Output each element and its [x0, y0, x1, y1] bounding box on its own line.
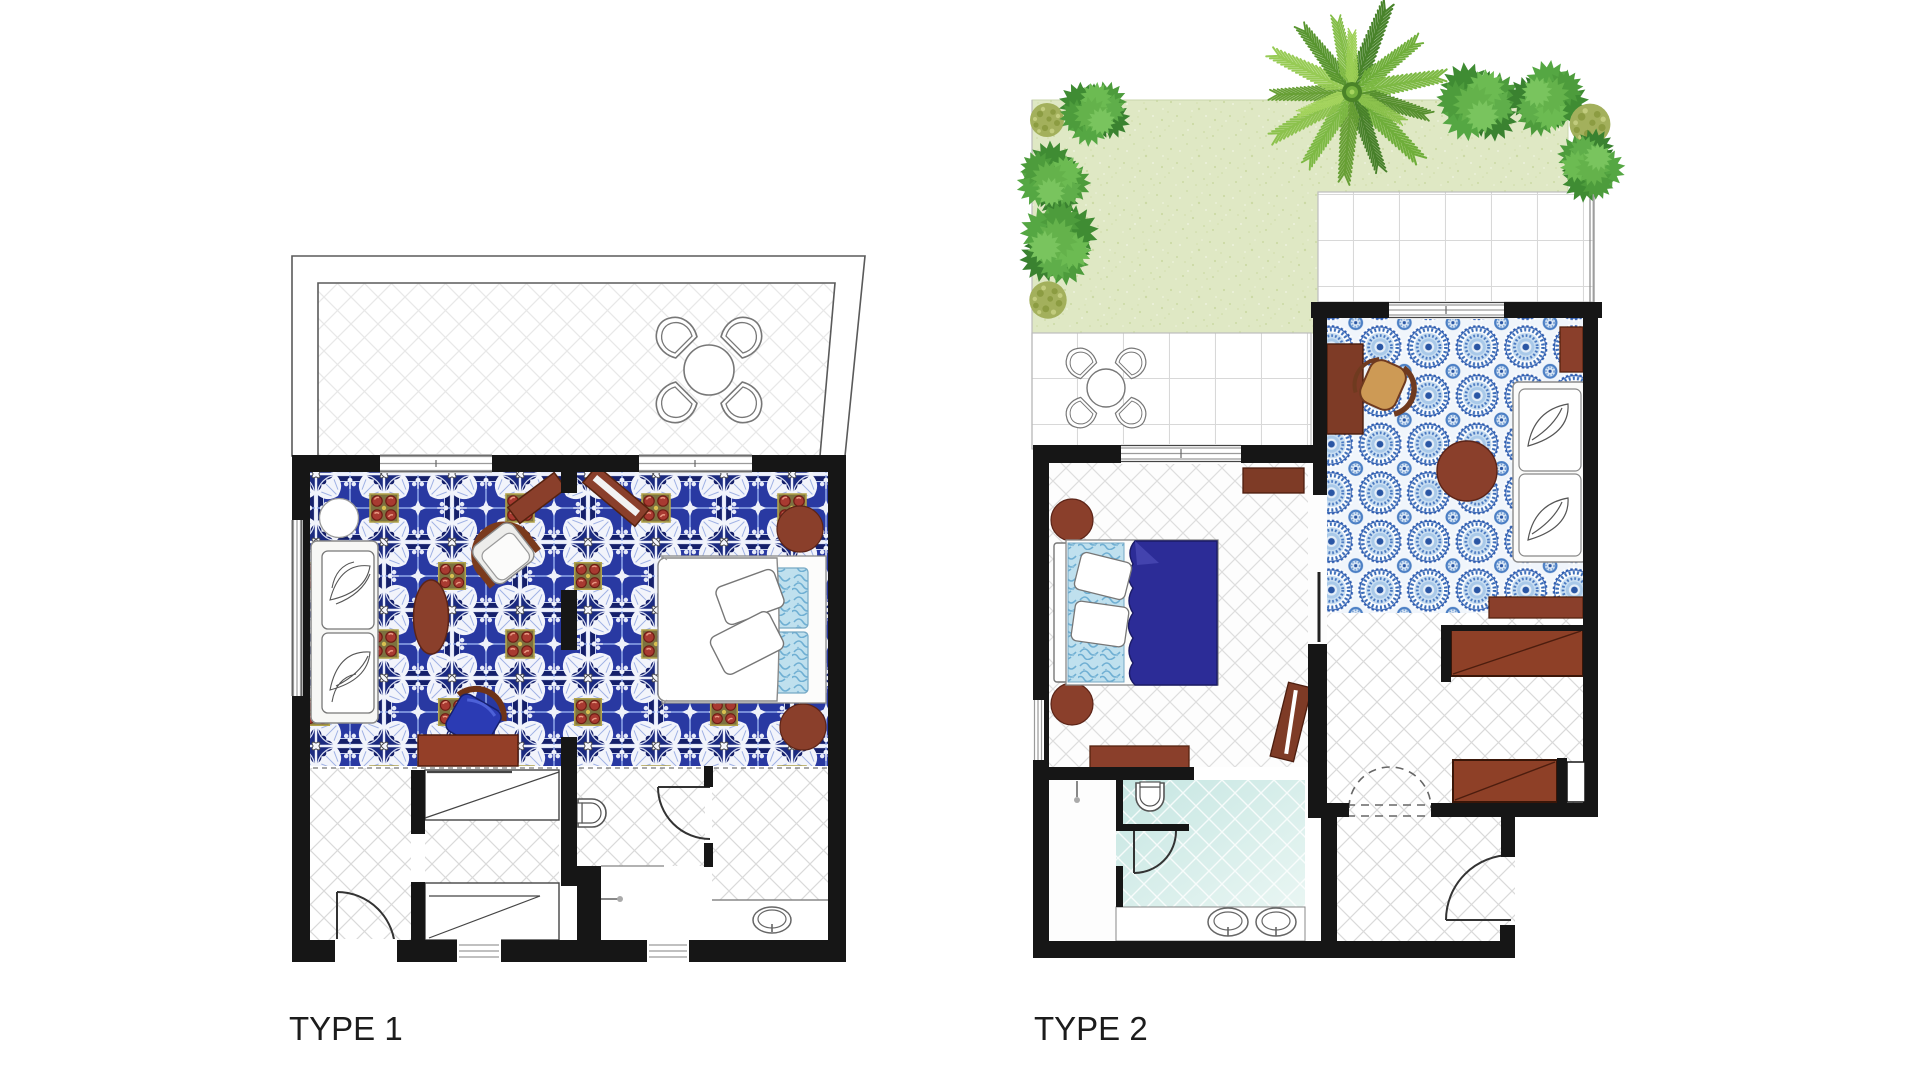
svg-text:TYPE 1: TYPE 1 — [289, 1010, 403, 1047]
svg-text:TYPE 2: TYPE 2 — [1034, 1010, 1148, 1047]
